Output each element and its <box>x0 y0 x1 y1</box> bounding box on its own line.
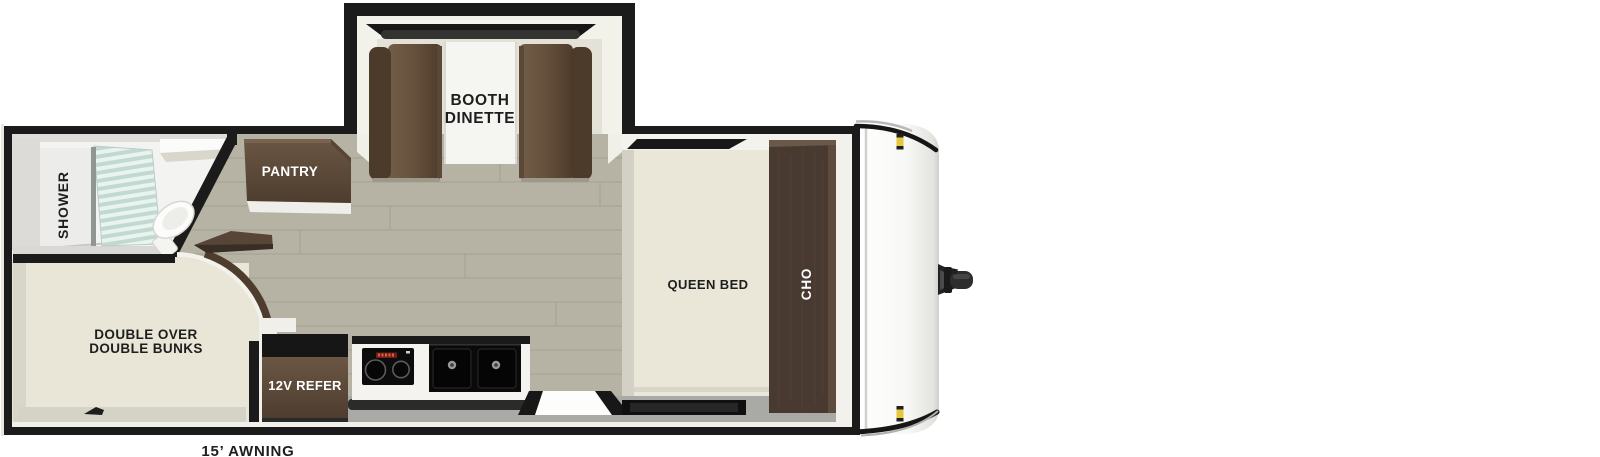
svg-text:QUEEN BED: QUEEN BED <box>668 277 749 292</box>
svg-text:CHO: CHO <box>799 268 814 300</box>
svg-text:15’ AWNING: 15’ AWNING <box>201 443 294 457</box>
svg-text:12V REFER: 12V REFER <box>268 378 342 393</box>
svg-text:DOUBLE OVER: DOUBLE OVER <box>94 327 197 342</box>
svg-text:DOUBLE BUNKS: DOUBLE BUNKS <box>89 341 203 356</box>
svg-text:PANTRY: PANTRY <box>262 164 318 179</box>
svg-text:DINETTE: DINETTE <box>445 110 516 127</box>
svg-text:BOOTH: BOOTH <box>451 92 510 109</box>
svg-text:SHOWER: SHOWER <box>55 171 71 239</box>
